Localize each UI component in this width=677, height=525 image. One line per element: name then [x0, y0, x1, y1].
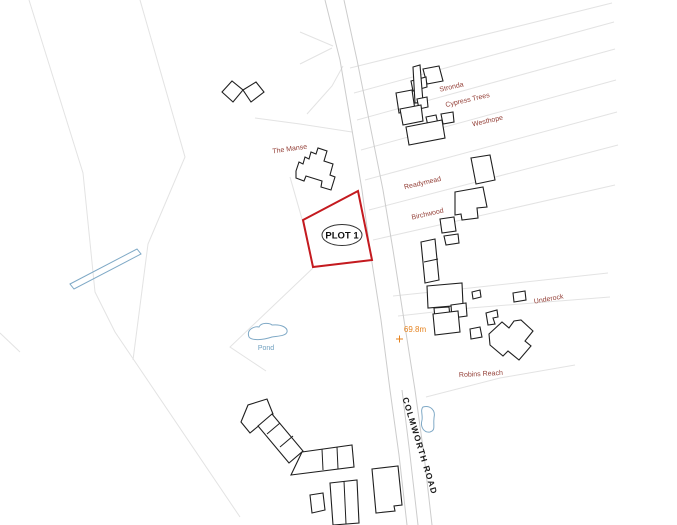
label-robins-reach: Robins Reach: [459, 370, 503, 379]
building: [441, 112, 454, 124]
building: [472, 290, 481, 299]
building: [400, 105, 423, 125]
roadside-pond-outline: [421, 407, 434, 433]
building: [440, 217, 456, 233]
label-the-manse: The Manse: [272, 144, 308, 156]
building-robins-reach: [489, 320, 533, 360]
building-the-manse: [296, 148, 335, 190]
building: [372, 466, 402, 513]
label-readymead: Readymead: [403, 176, 441, 191]
label-underock: Underock: [533, 293, 564, 305]
building: [444, 234, 459, 245]
plot-label-text: PLOT 1: [325, 231, 359, 242]
label-cypress-trees: Cypress Trees: [445, 92, 491, 109]
building: [513, 291, 526, 302]
building: [433, 311, 460, 335]
building: [258, 414, 303, 463]
building: [486, 310, 498, 325]
site-plan-map: PLOT 1 The Manse Stronda Cypress Trees W…: [0, 0, 677, 525]
site-plan-page: PLOT 1 The Manse Stronda Cypress Trees W…: [0, 0, 677, 525]
building: [413, 65, 423, 103]
building: [243, 82, 264, 102]
label-spot-height: 69.8m: [404, 325, 427, 334]
plot-1-label: PLOT 1: [322, 225, 362, 246]
building: [471, 155, 495, 184]
label-westhope: Westhope: [472, 115, 504, 129]
label-birchwood: Birchwood: [411, 207, 445, 221]
field-boundaries: [0, 0, 618, 517]
building: [222, 81, 243, 102]
drain-outline: [70, 249, 141, 289]
pond-outline: [248, 323, 287, 339]
building: [470, 327, 482, 339]
label-pond: Pond: [258, 345, 274, 352]
building: [310, 493, 325, 513]
spot-height-cross-icon: [396, 336, 403, 343]
